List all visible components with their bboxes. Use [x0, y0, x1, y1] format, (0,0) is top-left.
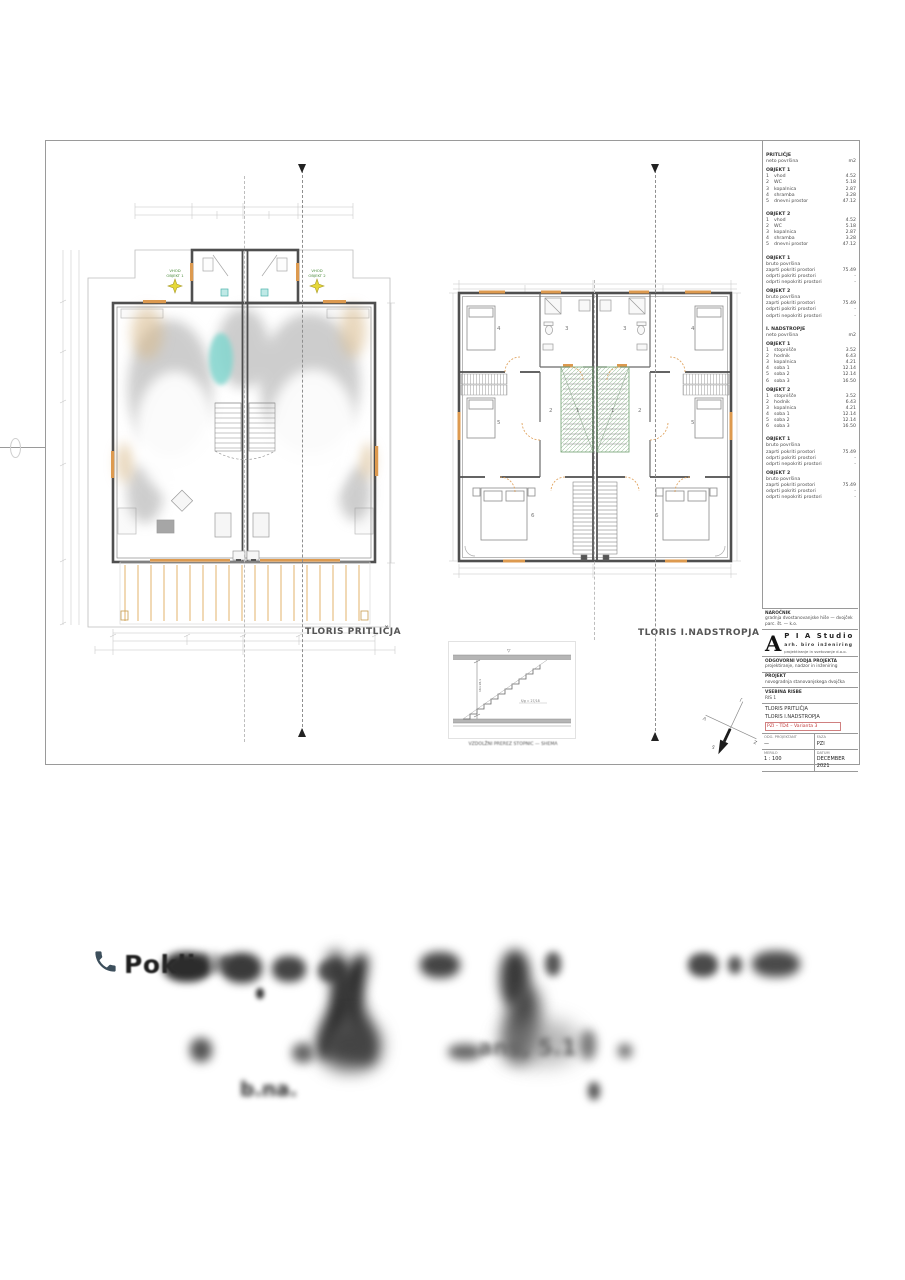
title-text-block: VSEBINA RISBERIS 1 [762, 688, 858, 704]
ground-plan-title: TLORIS PRITLIČJA [305, 627, 401, 637]
legend-section: I. NADSTROPJEneto površinam2OBJEKT 11sto… [766, 327, 856, 431]
entry-marker-2: VHOD OBJEKT 2 [308, 268, 326, 293]
blurred-text-blob [752, 951, 800, 977]
blurred-blob-large [320, 1020, 380, 1070]
section-arrow-icon [298, 728, 306, 737]
blurred-text-blob [420, 952, 460, 978]
svg-text:2: 2 [549, 408, 553, 414]
blurred-text-blob [222, 953, 262, 983]
variant-label: PZI – TD4 – Varianta 3 [765, 722, 841, 731]
title-grid-cell: MERILO1 : 100 [762, 750, 815, 772]
white-wash-group [135, 369, 358, 543]
svg-text:Z: Z [753, 738, 758, 745]
title-grid-cell: FAZAPZI [815, 734, 858, 750]
title-text-block: PROJEKTnovogradnja stanovanjskega dvojčk… [762, 673, 858, 689]
svg-text:1: 1 [611, 408, 615, 414]
blurred-text-blob [272, 956, 306, 982]
legend-row: 5dnevni prostor47.12 [766, 242, 856, 248]
blurred-text-blob [545, 952, 561, 976]
blurred-text-blob [163, 952, 211, 982]
dimension-label: 16×18,1 [478, 679, 482, 692]
entry-marker-1: VHOD OBJEKT 1 [166, 268, 184, 293]
edge-dimension-mark [10, 438, 21, 458]
legend-section: OBJEKT 1bruto površinazaprti pokriti pro… [766, 256, 856, 320]
edge-dimension-line [0, 447, 45, 448]
legend: PRITLIČJEneto površinam2OBJEKT 11vhod4.5… [766, 150, 856, 508]
section-line-b [655, 170, 656, 736]
title-text-block: ODGOVORNI VODJA PROJEKTAprojektiranje, n… [762, 657, 858, 673]
stair-section-detail: 16×18,1 š/g = 27/18 ▽ [447, 640, 577, 740]
floor-slabs [453, 655, 571, 726]
logo-block: AP I A Studioarh. biro inženiringprojekt… [762, 630, 858, 657]
legend-row: 5dnevni prostor47.12 [766, 199, 856, 205]
blurred-text-blob [580, 1030, 596, 1060]
logo-letter-icon: A [765, 633, 781, 654]
lower-stairs [573, 482, 617, 560]
drawing-list: TLORIS PRITLIČJATLORIS I.NADSTROPJAPZI –… [762, 704, 858, 734]
svg-text:5: 5 [691, 420, 695, 426]
door-arcs [500, 357, 690, 492]
bath-fixtures [543, 298, 647, 350]
svg-text:4: 4 [691, 326, 695, 332]
phone-icon [92, 948, 119, 975]
terrace [120, 562, 370, 624]
stair-core [561, 367, 629, 452]
title-grid-cell: ODG. PROJEKTANT— [762, 734, 815, 750]
blurred-text-blob [728, 956, 742, 974]
blurred-text-fragment: b.na. [240, 1077, 297, 1101]
svg-text:6: 6 [531, 513, 535, 519]
blurred-text-blob [618, 1044, 632, 1058]
vestibule-fixtures [203, 255, 287, 276]
legend-section: OBJEKT 1bruto površinazaprti pokriti pro… [766, 437, 856, 501]
legend-row: neto površinam2 [766, 333, 856, 339]
blurred-text-fragment: ans, 5.1 [478, 1036, 577, 1061]
stair-stringer [463, 660, 547, 719]
blurred-text-blob [588, 1082, 600, 1100]
corner-shelves [465, 546, 725, 556]
title-text-block: NAROČNIKgradnja dvostanovanjske hiše — d… [762, 609, 858, 630]
legend-row: neto površinam2 [766, 159, 856, 165]
svg-text:OBJEKT 2: OBJEKT 2 [308, 273, 326, 278]
legend-row: odprti nepokriti prostori- [766, 314, 856, 320]
legend-row: odprti nepokriti prostori- [766, 280, 856, 286]
blurred-text-blob [448, 1044, 482, 1060]
legend-row: 6soba 316.50 [766, 379, 856, 385]
svg-text:OBJEKT 1: OBJEKT 1 [166, 273, 184, 278]
section-line-a [302, 170, 303, 732]
beds [467, 306, 723, 540]
svg-text:2: 2 [638, 408, 642, 414]
north-arrow-icon [714, 740, 728, 756]
blurred-text-blob [190, 1038, 212, 1062]
svg-text:S: S [711, 743, 716, 750]
title-grid: ODG. PROJEKTANT—FAZAPZIMERILO1 : 100DATU… [762, 734, 858, 772]
legend-row: 6soba 316.50 [766, 424, 856, 430]
svg-text:1: 1 [576, 408, 580, 414]
star-icon [168, 279, 182, 293]
section-arrow-icon [651, 164, 659, 173]
svg-text:4: 4 [497, 326, 501, 332]
ground-floor-plan: VHOD OBJEKT 1 VHOD OBJEKT 2 [55, 163, 435, 748]
svg-text:3: 3 [623, 326, 627, 332]
legend-section: PRITLIČJEneto površinam2OBJEKT 11vhod4.5… [766, 153, 856, 205]
section-arrow-icon [298, 164, 306, 173]
title-block: NAROČNIKgradnja dvostanovanjske hiše — d… [762, 608, 858, 764]
title-grid-cell: DATUMDECEMBER 2021 [815, 750, 858, 772]
star-icon [310, 279, 324, 293]
blurred-text-blob [292, 1043, 314, 1063]
teal-stain [209, 333, 233, 385]
mirror-axis-upper [594, 280, 595, 640]
legend-row: odprti nepokriti prostori- [766, 462, 856, 468]
legend-row: odprti nepokriti prostori- [766, 495, 856, 501]
svg-text:5: 5 [497, 420, 501, 426]
legend-section: OBJEKT 21vhod4.522WC5.183kopalnica2.874s… [766, 212, 856, 249]
blurred-text-blob [256, 988, 264, 999]
section-arrow-icon [651, 732, 659, 741]
blurred-text-blob [688, 953, 718, 977]
stair-detail-caption: VZDOLŽNI PREREZ STOPNIC — SHEMA [437, 742, 589, 747]
mirror-axis-ground [244, 176, 245, 742]
stair-note: š/g = 27/18 [521, 699, 540, 703]
upper-plan-title: TLORIS I.NADSTROPJA [638, 628, 759, 638]
svg-text:3: 3 [565, 326, 569, 332]
level-mark: ▽ [507, 649, 511, 654]
compass-rose: S V J Z [699, 695, 763, 759]
upper-floor-plan: 4 3 2 1 5 6 3 4 1 2 5 6 [445, 272, 745, 607]
wardrobes [461, 374, 729, 395]
